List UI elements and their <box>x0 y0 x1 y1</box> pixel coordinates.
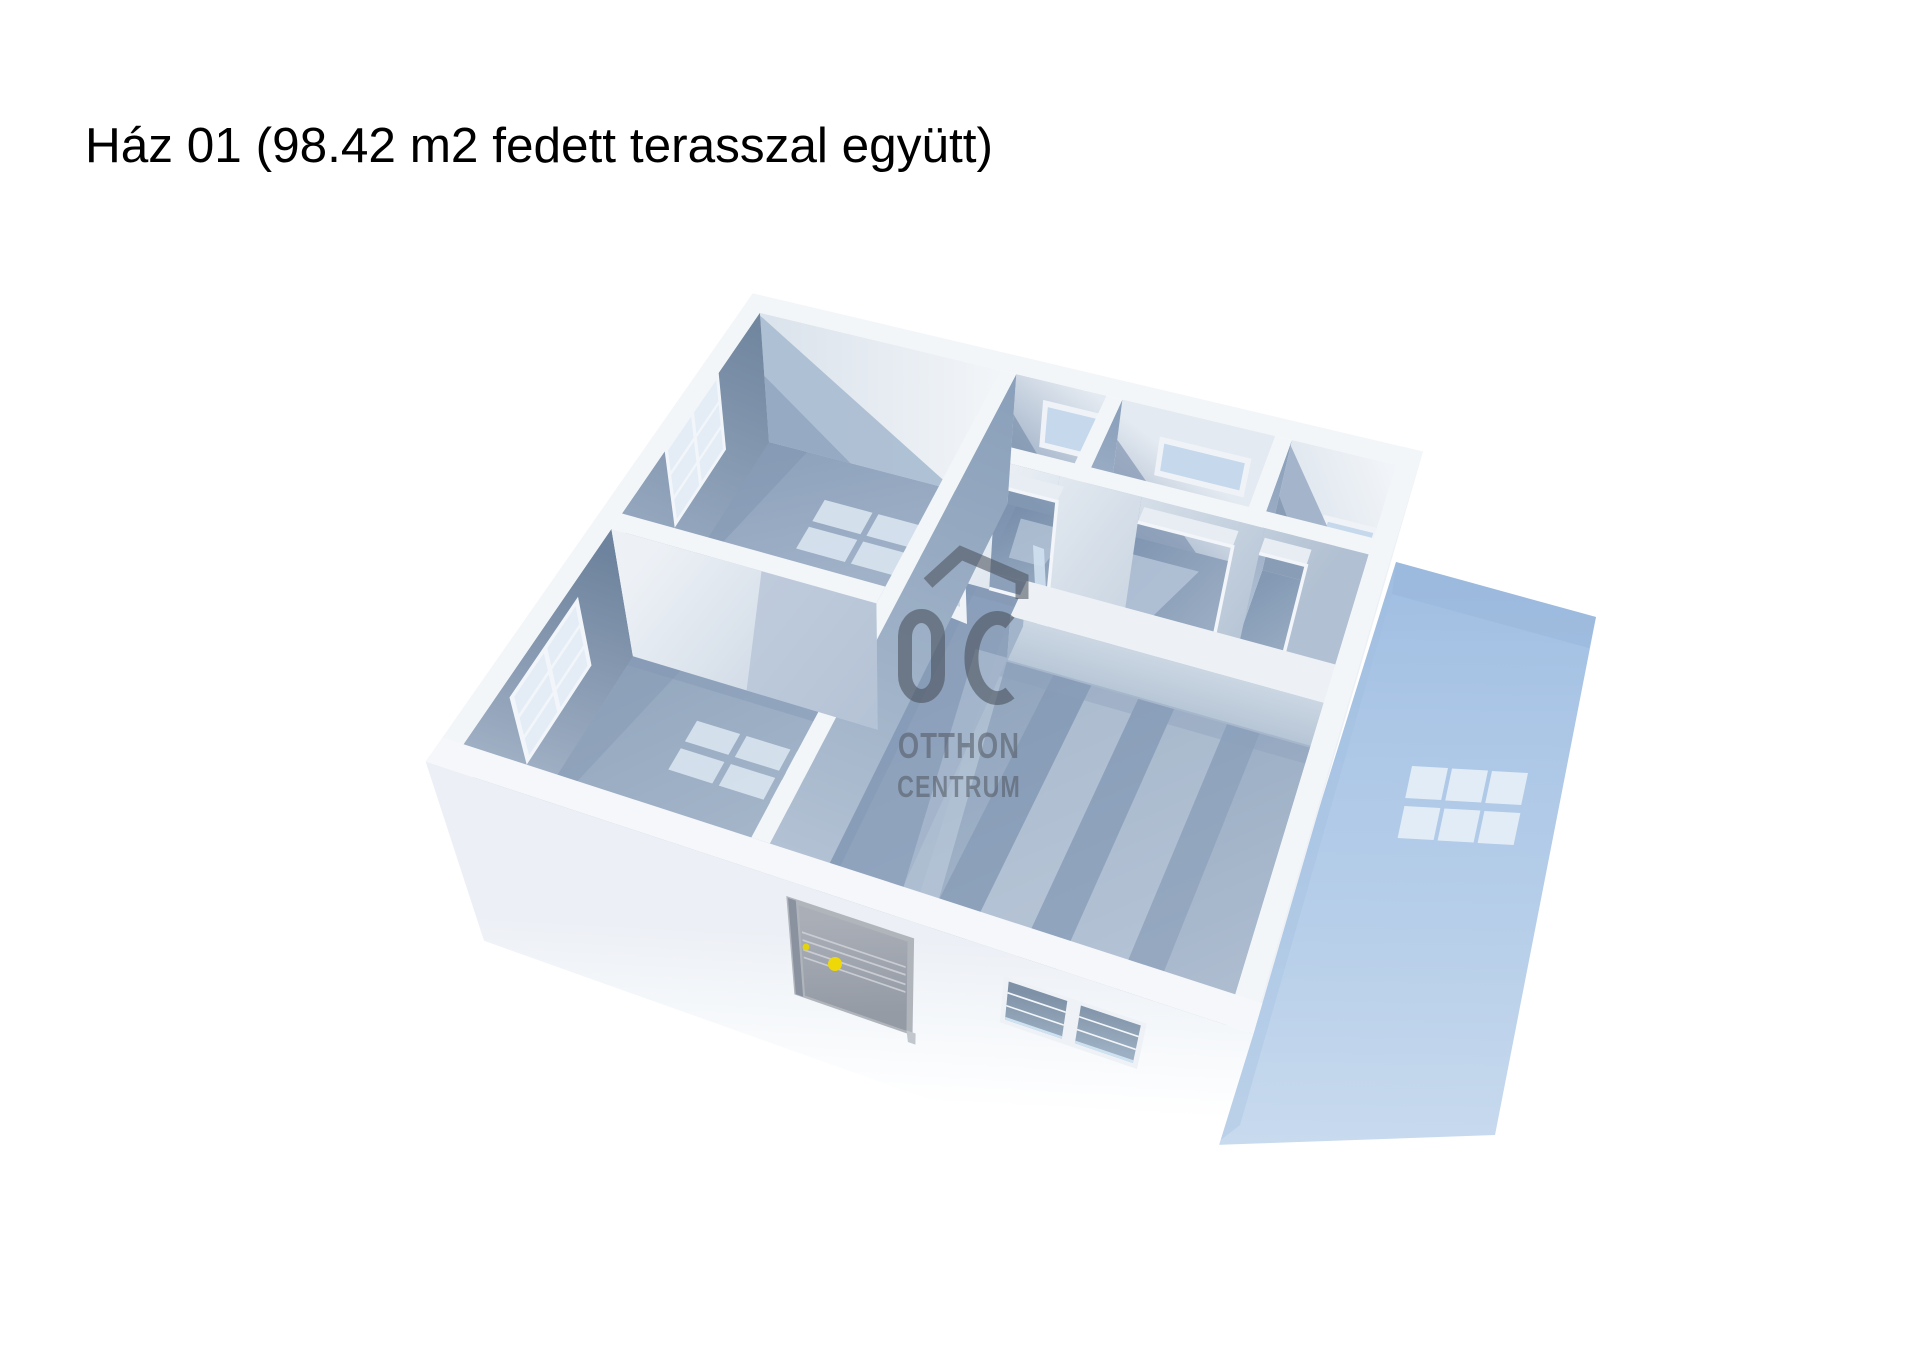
svg-text:CENTRUM: CENTRUM <box>897 769 1021 804</box>
svg-text:OTTHON: OTTHON <box>898 725 1020 766</box>
svg-text:Ház 01 (98.42 m2 fedett terass: Ház 01 (98.42 m2 fedett terasszal együtt… <box>85 118 993 173</box>
